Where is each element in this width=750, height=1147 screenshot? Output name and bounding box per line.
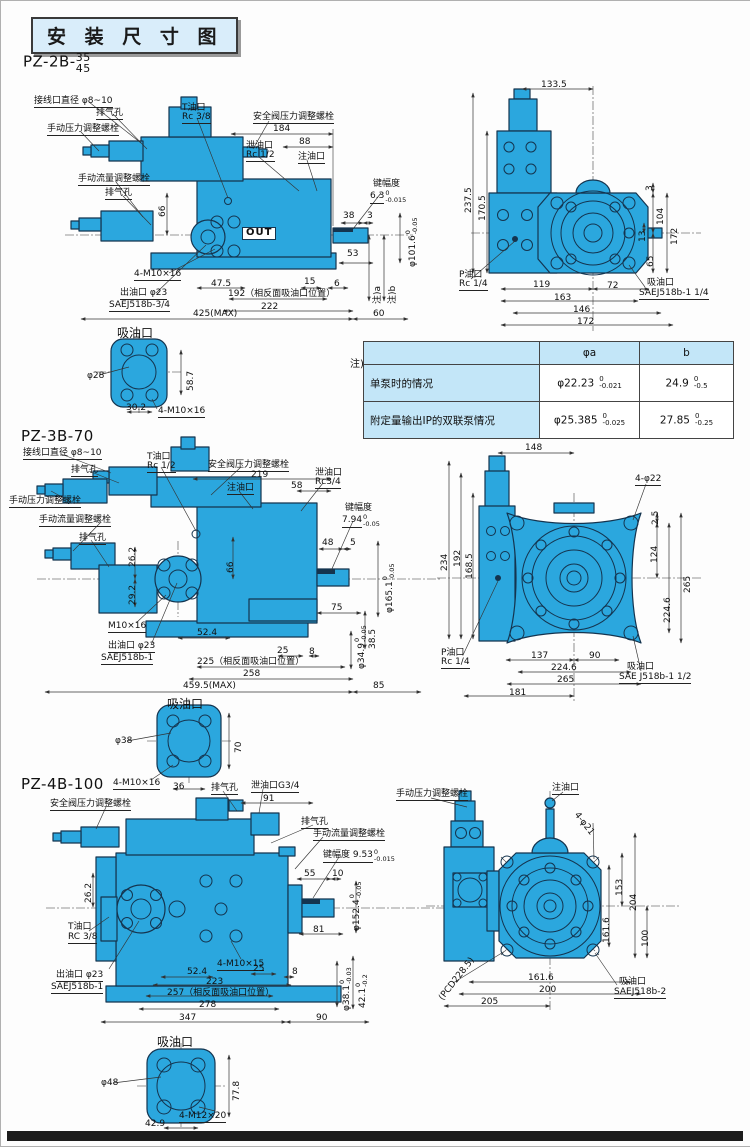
row-label: 单泵时的情况	[364, 365, 540, 402]
note-table: φa b 单泵时的情况 φ22.230-0.021 24.90-0.5 附定量输…	[363, 341, 734, 439]
model-fraction: 3545	[76, 52, 91, 74]
page: 安 装 尺 寸 图 PZ-2B-3545 PZ-3B-70 PZ-4B-100 …	[0, 0, 750, 1147]
pz3b-side-view	[37, 437, 441, 692]
note-col-empty	[364, 342, 540, 365]
value-b: 24.90-0.5	[640, 365, 734, 402]
note-mark: 注)	[350, 355, 364, 370]
model-code: PZ-2B-	[23, 53, 76, 71]
diagram-artwork	[1, 1, 750, 1146]
table-row: 单泵时的情况 φ22.230-0.021 24.90-0.5	[364, 365, 734, 402]
value-phi-a: φ25.3850-0.025	[540, 402, 640, 439]
row-label: 附定量输出IP的双联泵情况	[364, 402, 540, 439]
pz3b-rear-view	[437, 453, 701, 703]
pz2b-rear-view	[471, 86, 701, 331]
pz2b-suction-flange	[97, 333, 183, 413]
page-title: 安 装 尺 寸 图	[31, 17, 238, 54]
pz2b-side-view	[65, 97, 413, 319]
page-title-text: 安 装 尺 寸 图	[47, 26, 222, 48]
model-fraction-bottom: 45	[76, 63, 91, 74]
pz4b-side-view	[46, 789, 461, 1022]
note-table-header-row: φa b	[364, 342, 734, 365]
model-heading-pz-2b: PZ-2B-3545	[23, 51, 91, 73]
pz4b-rear-view	[426, 791, 681, 1011]
pz3b-suction-flange	[127, 699, 231, 789]
pz4b-suction-flange	[113, 1043, 229, 1129]
value-b: 27.850-0.25	[640, 402, 734, 439]
model-heading-pz-3b: PZ-3B-70	[21, 427, 94, 445]
model-heading-pz-4b: PZ-4B-100	[21, 775, 104, 793]
value-phi-a: φ22.230-0.021	[540, 365, 640, 402]
page-bottom-bar	[7, 1131, 743, 1141]
table-row: 附定量输出IP的双联泵情况 φ25.3850-0.025 27.850-0.25	[364, 402, 734, 439]
note-col-phi-a: φa	[540, 342, 640, 365]
note-col-b: b	[640, 342, 734, 365]
